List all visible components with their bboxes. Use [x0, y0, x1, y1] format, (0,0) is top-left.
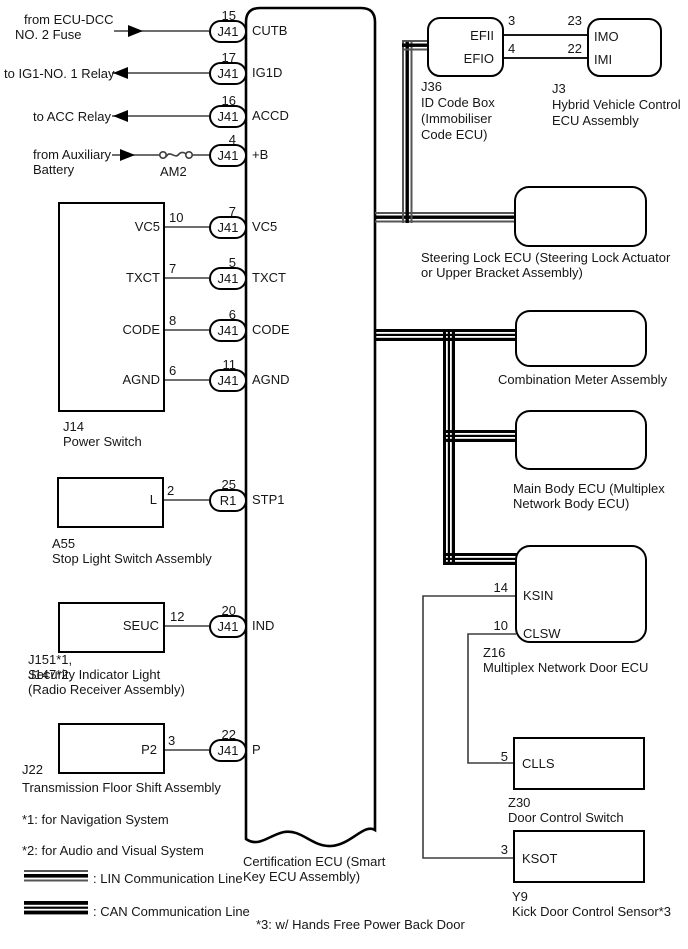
wiring-svg — [0, 0, 688, 949]
component-label-a55: Stop Light Switch Assembly — [52, 551, 212, 566]
z30-pin-clls: CLLS — [522, 756, 555, 771]
certification-ecu-outline — [246, 8, 375, 846]
component-id-a55: A55 — [52, 536, 75, 551]
j14-pin-vc5: VC5 — [60, 219, 160, 234]
component-id-j151: J151*1, — [28, 652, 72, 667]
component-id-z16: Z16 — [483, 645, 505, 660]
j151-pin-number-12: 12 — [170, 609, 184, 624]
j22-pin-p2: P2 — [60, 742, 157, 757]
component-id-j3: J3 — [552, 81, 566, 96]
z16-pin-clsw: CLSW — [523, 626, 561, 641]
z30-pin-number-5: 5 — [478, 749, 508, 764]
a55-pin-number-2: 2 — [167, 483, 174, 498]
ecu-pin-p: P — [252, 742, 261, 757]
connector-j41-vc5: J41 — [209, 216, 247, 239]
component-label-j36-line3: Code ECU) — [421, 127, 487, 142]
j3-pin-imo: IMO — [594, 29, 619, 44]
y9-pin-ksot: KSOT — [522, 851, 557, 866]
ecu-pin-accd: ACCD — [252, 108, 289, 123]
component-box-combination-meter — [515, 310, 647, 367]
ext-label-ecu-dcc-fuse-line1: from ECU-DCC — [24, 12, 114, 27]
j14-pin-code: CODE — [60, 322, 160, 337]
j14-pin-agnd: AGND — [60, 372, 160, 387]
lin-legend-icon — [24, 870, 88, 882]
connector-j41-agnd: J41 — [209, 369, 247, 392]
ext-label-ig1-relay: to IG1-NO. 1 Relay — [4, 66, 115, 81]
wiring-diagram-canvas: from ECU-DCC NO. 2 Fuse to IG1-NO. 1 Rel… — [0, 0, 688, 949]
note-3: *3: w/ Hands Free Power Back Door — [256, 917, 465, 932]
z16-pin-number-14: 14 — [478, 580, 508, 595]
component-label-j3-line2: ECU Assembly — [552, 113, 639, 128]
j3-pin-number-23: 23 — [552, 13, 582, 28]
j14-pin-number-10: 10 — [169, 210, 183, 225]
j14-pin-txct: TXCT — [60, 270, 160, 285]
connector-j41-txct: J41 — [209, 267, 247, 290]
component-label-main-body-line1: Main Body ECU (Multiplex — [513, 481, 665, 496]
j14-pin-number-6: 6 — [169, 363, 176, 378]
note-2: *2: for Audio and Visual System — [22, 843, 204, 858]
ecu-pin-ind: IND — [252, 618, 274, 633]
wire-ksin-ksot — [423, 596, 516, 858]
component-label-j3-line1: Hybrid Vehicle Control — [552, 97, 681, 112]
ecu-pin-stp1: STP1 — [252, 492, 285, 507]
ecu-pin-cutb: CUTB — [252, 23, 287, 38]
arrow-left-icon — [113, 67, 128, 79]
j3-pin-number-22: 22 — [552, 41, 582, 56]
note-1: *1: for Navigation System — [22, 812, 169, 827]
a55-pin-l: L — [57, 492, 157, 507]
connector-j41-cutb: J41 — [209, 20, 247, 43]
connector-j41-ig1d: J41 — [209, 62, 247, 85]
connector-j41-code: J41 — [209, 319, 247, 342]
component-label-z30: Door Control Switch — [508, 810, 624, 825]
can-legend-icon — [24, 901, 88, 914]
component-label-j151-overlap: Security Indicator Light — [28, 667, 160, 682]
arrow-left-icon — [113, 110, 128, 122]
component-box-main-body-ecu — [515, 410, 647, 470]
fuse-am2-label: AM2 — [160, 164, 187, 179]
connector-j41-ind: J41 — [209, 615, 247, 638]
j36-pin-efii: EFII — [432, 28, 494, 43]
direction-arrows — [113, 25, 143, 161]
fuse-am2-icon — [160, 152, 192, 158]
component-box-j3 — [587, 18, 662, 77]
certification-ecu-label-line2: Key ECU Assembly) — [243, 869, 360, 884]
component-id-z30: Z30 — [508, 795, 530, 810]
y9-pin-number-3: 3 — [478, 842, 508, 857]
component-box-j36 — [427, 17, 504, 77]
connector-j41-p: J41 — [209, 739, 247, 762]
ext-label-acc-relay: to ACC Relay — [33, 109, 111, 124]
legend-can-label: : CAN Communication Line — [93, 904, 250, 919]
j151-pin-seuc: SEUC — [60, 618, 159, 633]
component-label-steering-line2: or Upper Bracket Assembly) — [421, 265, 583, 280]
j36-pin-efio: EFIO — [432, 51, 494, 66]
j14-pin-number-8: 8 — [169, 313, 176, 328]
component-label-z16: Multiplex Network Door ECU — [483, 660, 648, 675]
ecu-pin-txct: TXCT — [252, 270, 286, 285]
legend-lin-label: : LIN Communication Line — [93, 871, 243, 886]
component-id-j36: J36 — [421, 79, 442, 94]
component-label-j36-line2: (Immobiliser — [421, 111, 492, 126]
ecu-pin-vc5: VC5 — [252, 219, 277, 234]
can-bus — [375, 329, 518, 565]
component-label-j151-line2: (Radio Receiver Assembly) — [28, 682, 185, 697]
arrow-right-icon — [120, 149, 135, 161]
component-label-j36-line1: ID Code Box — [421, 95, 495, 110]
j14-pin-number-7: 7 — [169, 261, 176, 276]
component-label-j22: Transmission Floor Shift Assembly — [22, 780, 221, 795]
component-label-main-body-line2: Network Body ECU) — [513, 496, 629, 511]
arrow-right-icon — [128, 25, 143, 37]
connector-j41-accd: J41 — [209, 105, 247, 128]
connector-j41-plusb: J41 — [209, 144, 247, 167]
ecu-pin-plusb: +B — [252, 147, 268, 162]
certification-ecu-label-line1: Certification ECU (Smart — [243, 854, 385, 869]
component-label-combination-meter: Combination Meter Assembly — [498, 372, 667, 387]
j36-pin-number-3: 3 — [508, 13, 515, 28]
component-box-steering-lock — [514, 186, 647, 247]
ecu-pin-ig1d: IG1D — [252, 65, 282, 80]
j22-pin-number-3: 3 — [168, 733, 175, 748]
component-label-y9: Kick Door Control Sensor*3 — [512, 904, 671, 919]
ext-label-aux-battery-line1: from Auxiliary — [33, 147, 111, 162]
ecu-pin-agnd: AGND — [252, 372, 290, 387]
z16-pin-number-10: 10 — [478, 618, 508, 633]
ecu-pin-code: CODE — [252, 322, 290, 337]
j3-pin-imi: IMI — [594, 52, 612, 67]
connector-r1-stp1: R1 — [209, 489, 247, 512]
ext-label-ecu-dcc-fuse-line2: NO. 2 Fuse — [15, 27, 81, 42]
component-id-j22: J22 — [22, 762, 43, 777]
component-id-y9: Y9 — [512, 889, 528, 904]
component-label-j14: Power Switch — [63, 434, 142, 449]
z16-pin-ksin: KSIN — [523, 588, 553, 603]
ext-label-aux-battery-line2: Battery — [33, 162, 74, 177]
component-id-j14: J14 — [63, 419, 84, 434]
j36-pin-number-4: 4 — [508, 41, 515, 56]
component-label-steering-line1: Steering Lock ECU (Steering Lock Actuato… — [421, 250, 670, 265]
